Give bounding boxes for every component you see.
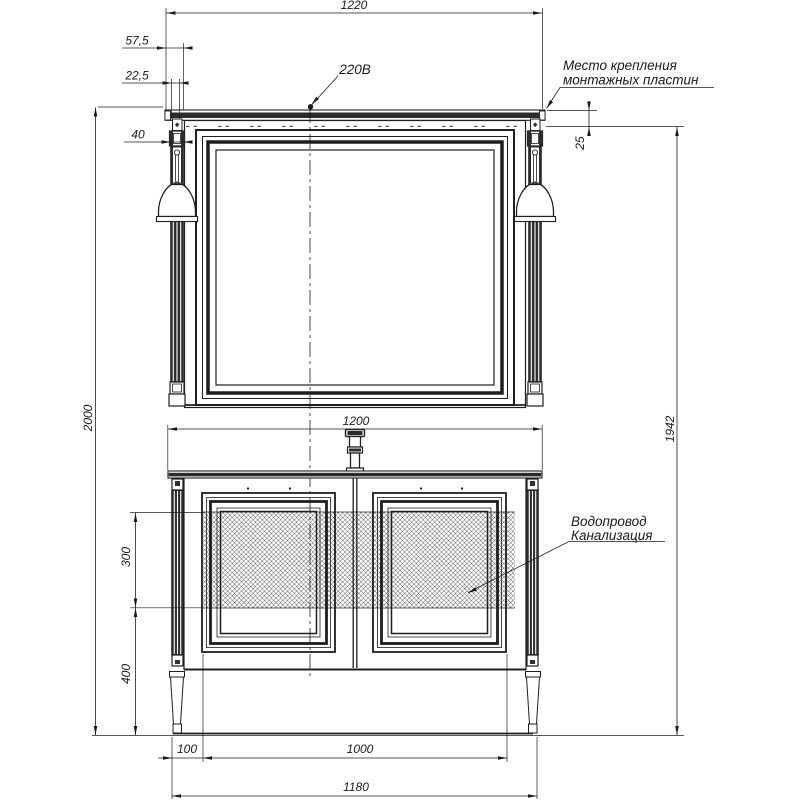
furniture-installation-drawing: 1220 57,5 22,5 40 2000 1942 25 1200 300 … (0, 0, 800, 800)
water-label-line2: Канализация (571, 528, 652, 543)
door-pins (247, 487, 463, 489)
dim-leg-inset: 100 (177, 742, 197, 756)
column-base-right (527, 394, 543, 406)
technical-drawing-page: 1220 57,5 22,5 40 2000 1942 25 1200 300 … (0, 0, 800, 800)
lamp-shade-right (517, 185, 554, 217)
lamp-stem-right (532, 150, 537, 155)
mirror-assembly (157, 110, 556, 408)
dim-plate-offset: 25 (573, 136, 587, 151)
power-callout: 220В (308, 62, 371, 110)
dim-lamp-offset: 22,5 (124, 69, 149, 83)
lamp-stem-left (174, 150, 179, 155)
power-label: 220В (338, 62, 371, 77)
mirror-cornice (165, 110, 545, 120)
dim-cornice-offset: 57,5 (125, 34, 149, 48)
lamp-shade-left (159, 185, 196, 217)
mirror-left-column (157, 119, 198, 406)
mirror-backboard (185, 121, 526, 408)
vanity-cabinet (168, 430, 542, 734)
countertop (168, 471, 542, 478)
mounting-label-line1: Место крепления (563, 58, 677, 73)
dim-door-span: 1000 (347, 742, 374, 756)
utility-zone-hatch (203, 512, 515, 608)
mirror-frame (196, 130, 514, 405)
dim-utility-bottom: 400 (119, 664, 133, 684)
mounting-callout: Место крепления монтажных пластин (547, 58, 715, 109)
water-label-line1: Водопровод (571, 514, 647, 529)
mirror-right-column (515, 119, 556, 406)
right-leg (526, 672, 541, 734)
dim-total-height: 2000 (81, 404, 95, 432)
vanity-right-pilaster (527, 479, 539, 666)
mounting-label-line2: монтажных пластин (563, 73, 699, 88)
dim-vanity-width: 1200 (343, 414, 370, 428)
vanity-left-pilaster (172, 479, 184, 666)
dim-utility-height: 300 (119, 547, 133, 567)
dim-top-width: 1220 (341, 0, 368, 12)
dim-mount-height: 1942 (663, 415, 677, 442)
left-leg (170, 672, 185, 734)
column-base-left (169, 394, 185, 406)
power-point-dot (308, 104, 313, 109)
dim-base-width: 1180 (343, 780, 369, 794)
faucet (346, 430, 365, 472)
dim-column-width: 40 (131, 128, 145, 142)
